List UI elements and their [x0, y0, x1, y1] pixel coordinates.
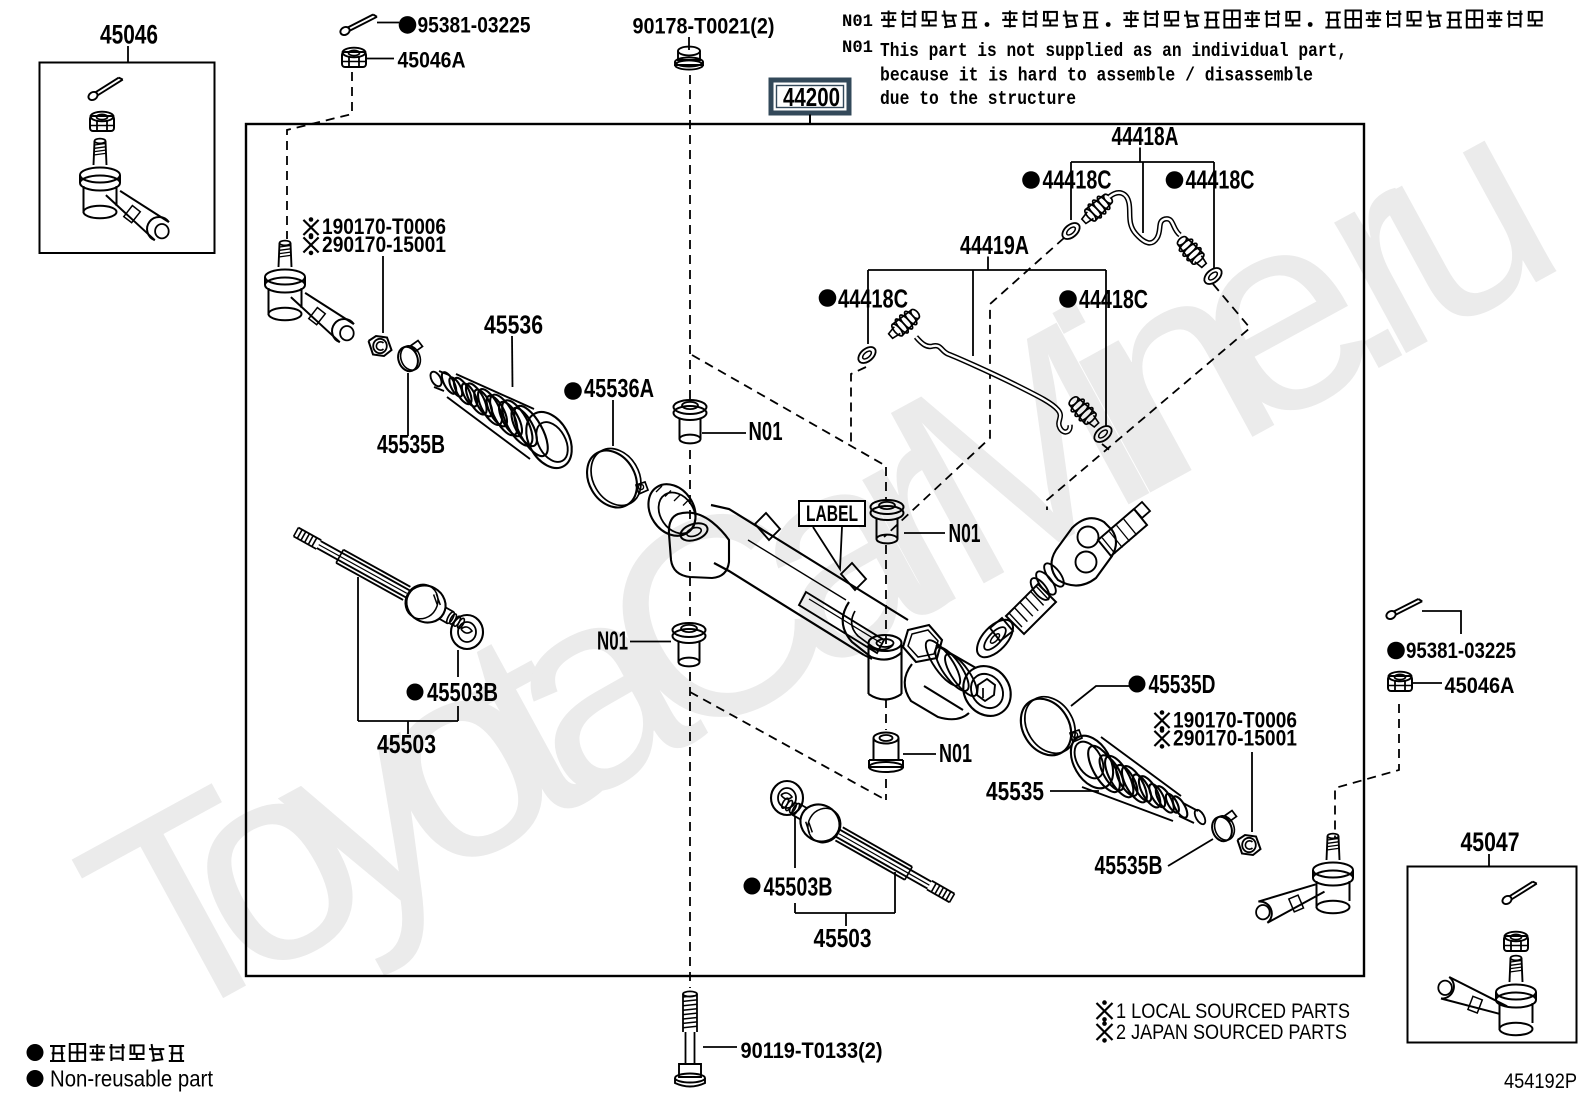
svg-text:290170-15001: 290170-15001	[1173, 726, 1297, 751]
svg-text:N01: N01	[939, 738, 972, 768]
svg-text:N01: N01	[597, 626, 628, 656]
svg-text:45535: 45535	[986, 776, 1044, 806]
svg-text:2 JAPAN SOURCED PARTS: 2 JAPAN SOURCED PARTS	[1116, 1021, 1347, 1044]
svg-text:This part is not supplied as a: This part is not supplied as an individu…	[880, 40, 1347, 62]
svg-text:N01: N01	[842, 12, 873, 32]
svg-text:45046: 45046	[100, 20, 158, 50]
svg-text:44418C: 44418C	[1079, 284, 1148, 314]
svg-text:45503: 45503	[377, 729, 436, 759]
svg-text:44418C: 44418C	[838, 284, 908, 314]
svg-text:90178-T0021(2): 90178-T0021(2)	[633, 14, 775, 39]
svg-text:45503B: 45503B	[427, 677, 498, 707]
svg-text:N01: N01	[842, 38, 873, 58]
svg-text:45046A: 45046A	[1445, 673, 1515, 698]
svg-text:N01: N01	[949, 518, 981, 548]
svg-text:1 LOCAL SOURCED PARTS: 1 LOCAL SOURCED PARTS	[1116, 1000, 1350, 1023]
svg-text:45535B: 45535B	[1095, 850, 1163, 880]
svg-text:45046A: 45046A	[398, 48, 466, 73]
svg-text:because it is hard to assemble: because it is hard to assemble / disasse…	[880, 65, 1313, 87]
svg-text:45535D: 45535D	[1149, 669, 1216, 699]
svg-text:45536A: 45536A	[584, 373, 654, 403]
svg-text:90119-T0133(2): 90119-T0133(2)	[741, 1038, 883, 1063]
svg-text:N01: N01	[749, 416, 783, 446]
svg-text:45503B: 45503B	[764, 872, 833, 902]
svg-text:454192P: 454192P	[1504, 1070, 1577, 1093]
svg-text:44419A: 44419A	[960, 230, 1029, 260]
svg-text:45503: 45503	[814, 923, 872, 953]
svg-text:95381-03225: 95381-03225	[418, 13, 531, 38]
svg-text:44418A: 44418A	[1112, 121, 1179, 151]
svg-text:LABEL: LABEL	[806, 501, 858, 526]
svg-text:44418C: 44418C	[1186, 165, 1255, 195]
svg-text:44200: 44200	[783, 82, 840, 112]
svg-text:45535B: 45535B	[377, 429, 445, 459]
svg-text:44418C: 44418C	[1043, 165, 1112, 195]
svg-text:due to the structure: due to the structure	[880, 88, 1076, 110]
svg-text:290170-15001: 290170-15001	[322, 232, 446, 257]
svg-text:95381-03225: 95381-03225	[1406, 638, 1516, 663]
svg-text:45047: 45047	[1461, 827, 1520, 857]
svg-text:Non-reusable part: Non-reusable part	[50, 1066, 214, 1092]
svg-text:45536: 45536	[484, 310, 543, 340]
